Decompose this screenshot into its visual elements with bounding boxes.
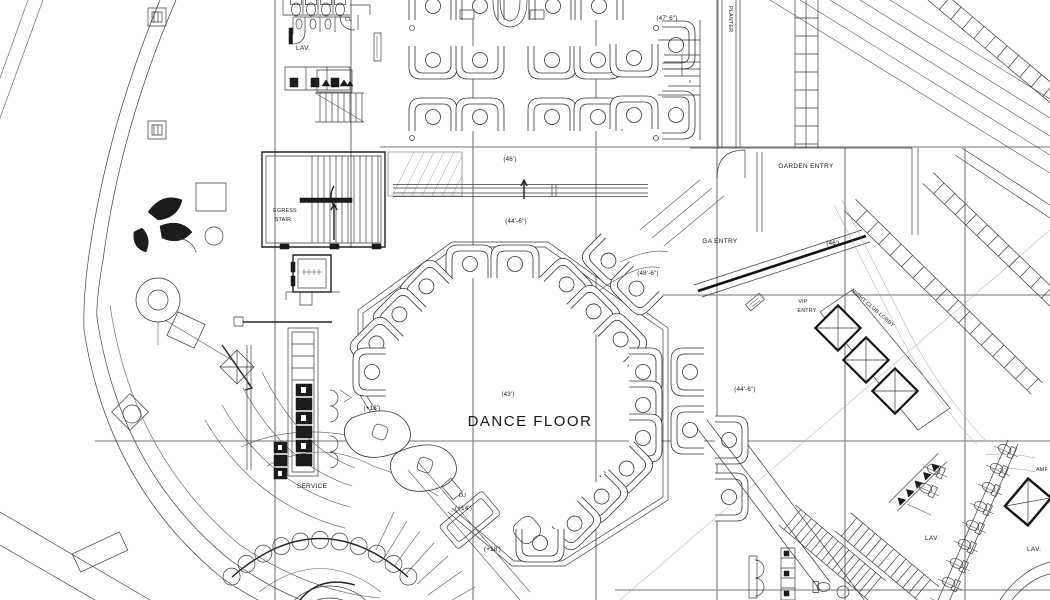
label-amphitheater: AMF — [1036, 467, 1048, 473]
label-dim-43: (43') — [501, 391, 514, 398]
label-ga-entry: GA ENTRY — [702, 238, 738, 245]
label-vip-line1: VIP — [798, 299, 807, 305]
floor-plan-sheet: LAV. CL EGRESS STAIR — [0, 0, 1050, 600]
label-vip-line2: ENTRY — [797, 308, 816, 314]
triangle-stair-band — [889, 453, 947, 511]
label-elev-stage-west: (+18') — [364, 405, 381, 412]
restroom-upper-left: LAV. CL — [283, 0, 381, 122]
label-lav-right-a: LAV. — [925, 535, 939, 542]
stair-band-corner — [928, 0, 1050, 106]
restroom-stalls-right — [907, 440, 1018, 600]
label-service: SERVICE — [297, 483, 328, 490]
bridge — [393, 180, 648, 199]
label-dance-floor: DANCE FLOOR — [468, 413, 593, 430]
floor-plan-canvas: LAV. CL EGRESS STAIR — [0, 0, 1050, 600]
garden-entry: PLANTER GARDEN ENTRY (47' 6") — [656, 0, 1050, 235]
label-dim-46-top: (46') — [503, 156, 516, 163]
label-lav-upper-left: LAV. — [296, 45, 310, 52]
southeast-block: LAV. LAV. AMF — [697, 420, 1050, 600]
stair-band-se-2 — [835, 513, 939, 600]
label-elev-south: (+18') — [484, 546, 501, 553]
label-lav-right-b: LAV. — [1027, 546, 1041, 553]
planting-cluster — [134, 198, 196, 252]
label-garden-entry: GARDEN ENTRY — [778, 163, 833, 170]
service-bar: SERVICE — [247, 328, 338, 490]
label-planter: PLANTER — [727, 6, 733, 32]
scallop-seats — [223, 532, 417, 586]
dance-floor-ring: (43') DANCE FLOOR — [346, 234, 748, 566]
section-marker — [220, 345, 254, 390]
label-dim-44-6-right: (44'-6") — [734, 386, 755, 393]
label-dim-44-6-top: (44'-6") — [505, 218, 526, 225]
column-symbol-b — [148, 121, 166, 139]
label-egress-line2: STAIR — [275, 217, 291, 223]
label-dim-48-6: (48'-6") — [637, 270, 658, 277]
label-elev-dj: (+14') — [455, 505, 472, 512]
label-dim-47-6: (47' 6") — [656, 15, 677, 22]
label-closet: CL — [345, 17, 352, 23]
label-dj: DJ — [459, 493, 466, 499]
label-dim-46-right: (46') — [826, 240, 839, 247]
label-egress-line1: EGRESS — [273, 208, 297, 214]
